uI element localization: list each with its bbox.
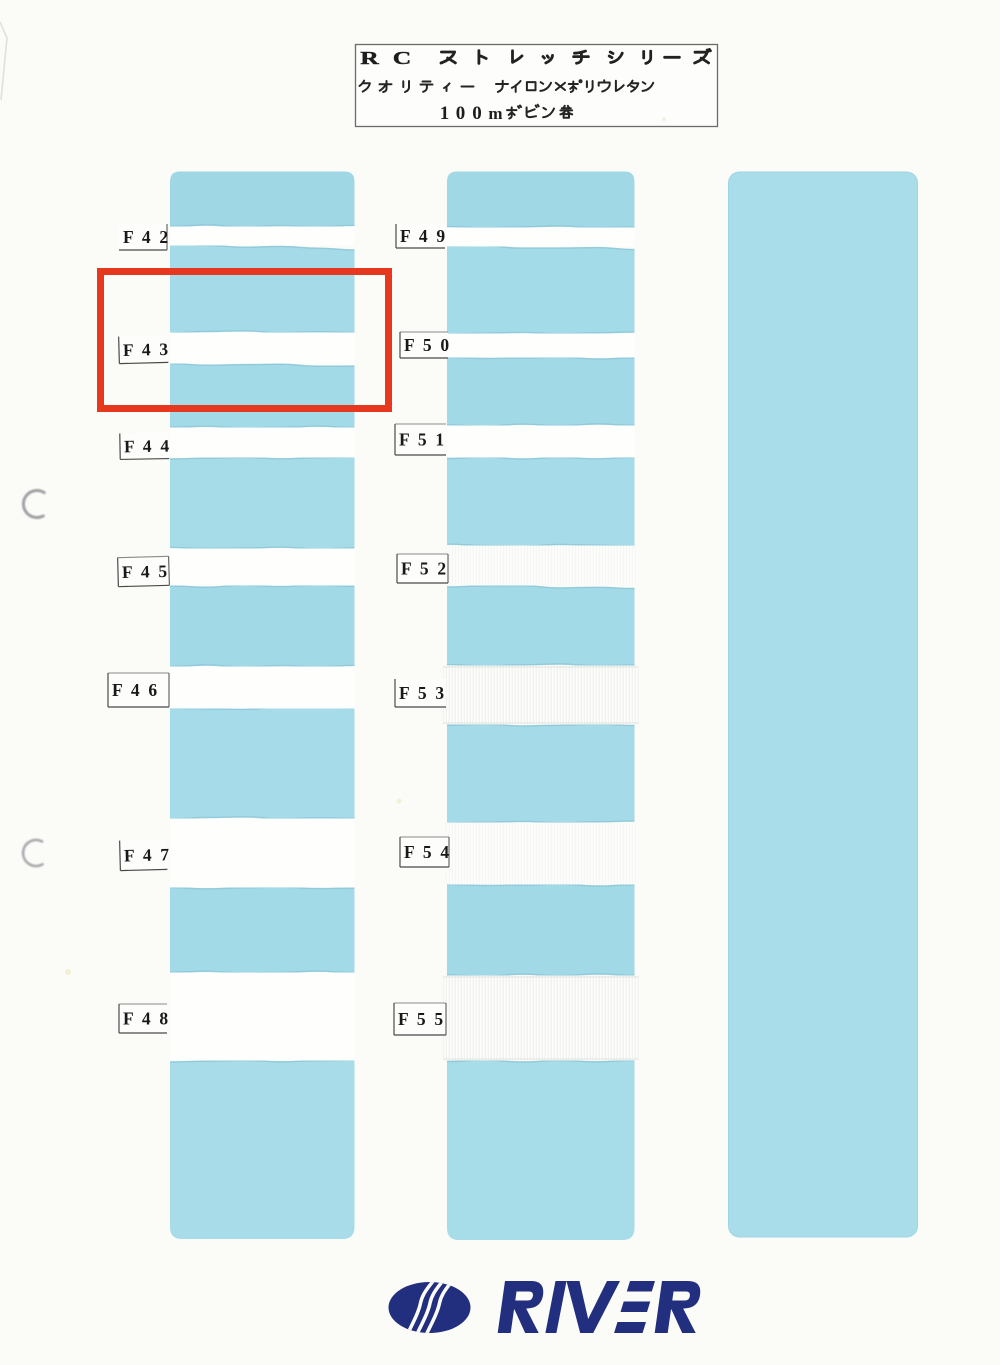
svg-text:F 4 5: F 4 5: [122, 561, 170, 582]
svg-text:F 4 8: F 4 8: [123, 1009, 170, 1029]
svg-text:F 4 9: F 4 9: [400, 226, 447, 246]
svg-text:F 5 2: F 5 2: [401, 559, 448, 579]
svg-text:C: C: [393, 48, 412, 68]
svg-text:F 4 6: F 4 6: [112, 680, 159, 700]
svg-text:m: m: [488, 104, 502, 123]
svg-text:F 5 3: F 5 3: [399, 683, 446, 703]
svg-text:F 4 7: F 4 7: [124, 844, 172, 865]
svg-text:F 5 1: F 5 1: [399, 430, 446, 450]
svg-text:R: R: [360, 48, 380, 68]
svg-text:F 5 5: F 5 5: [398, 1009, 445, 1029]
svg-text:F 5 4: F 5 4: [404, 842, 451, 862]
svg-text:F 4 3: F 4 3: [123, 339, 171, 360]
svg-text:1: 1: [440, 103, 450, 124]
svg-text:0: 0: [472, 103, 482, 124]
svg-text:F 4 2: F 4 2: [123, 227, 170, 247]
svg-text:0: 0: [456, 103, 466, 124]
svg-text:F 5 0: F 5 0: [404, 335, 451, 355]
svg-text:F 4 4: F 4 4: [124, 436, 172, 457]
